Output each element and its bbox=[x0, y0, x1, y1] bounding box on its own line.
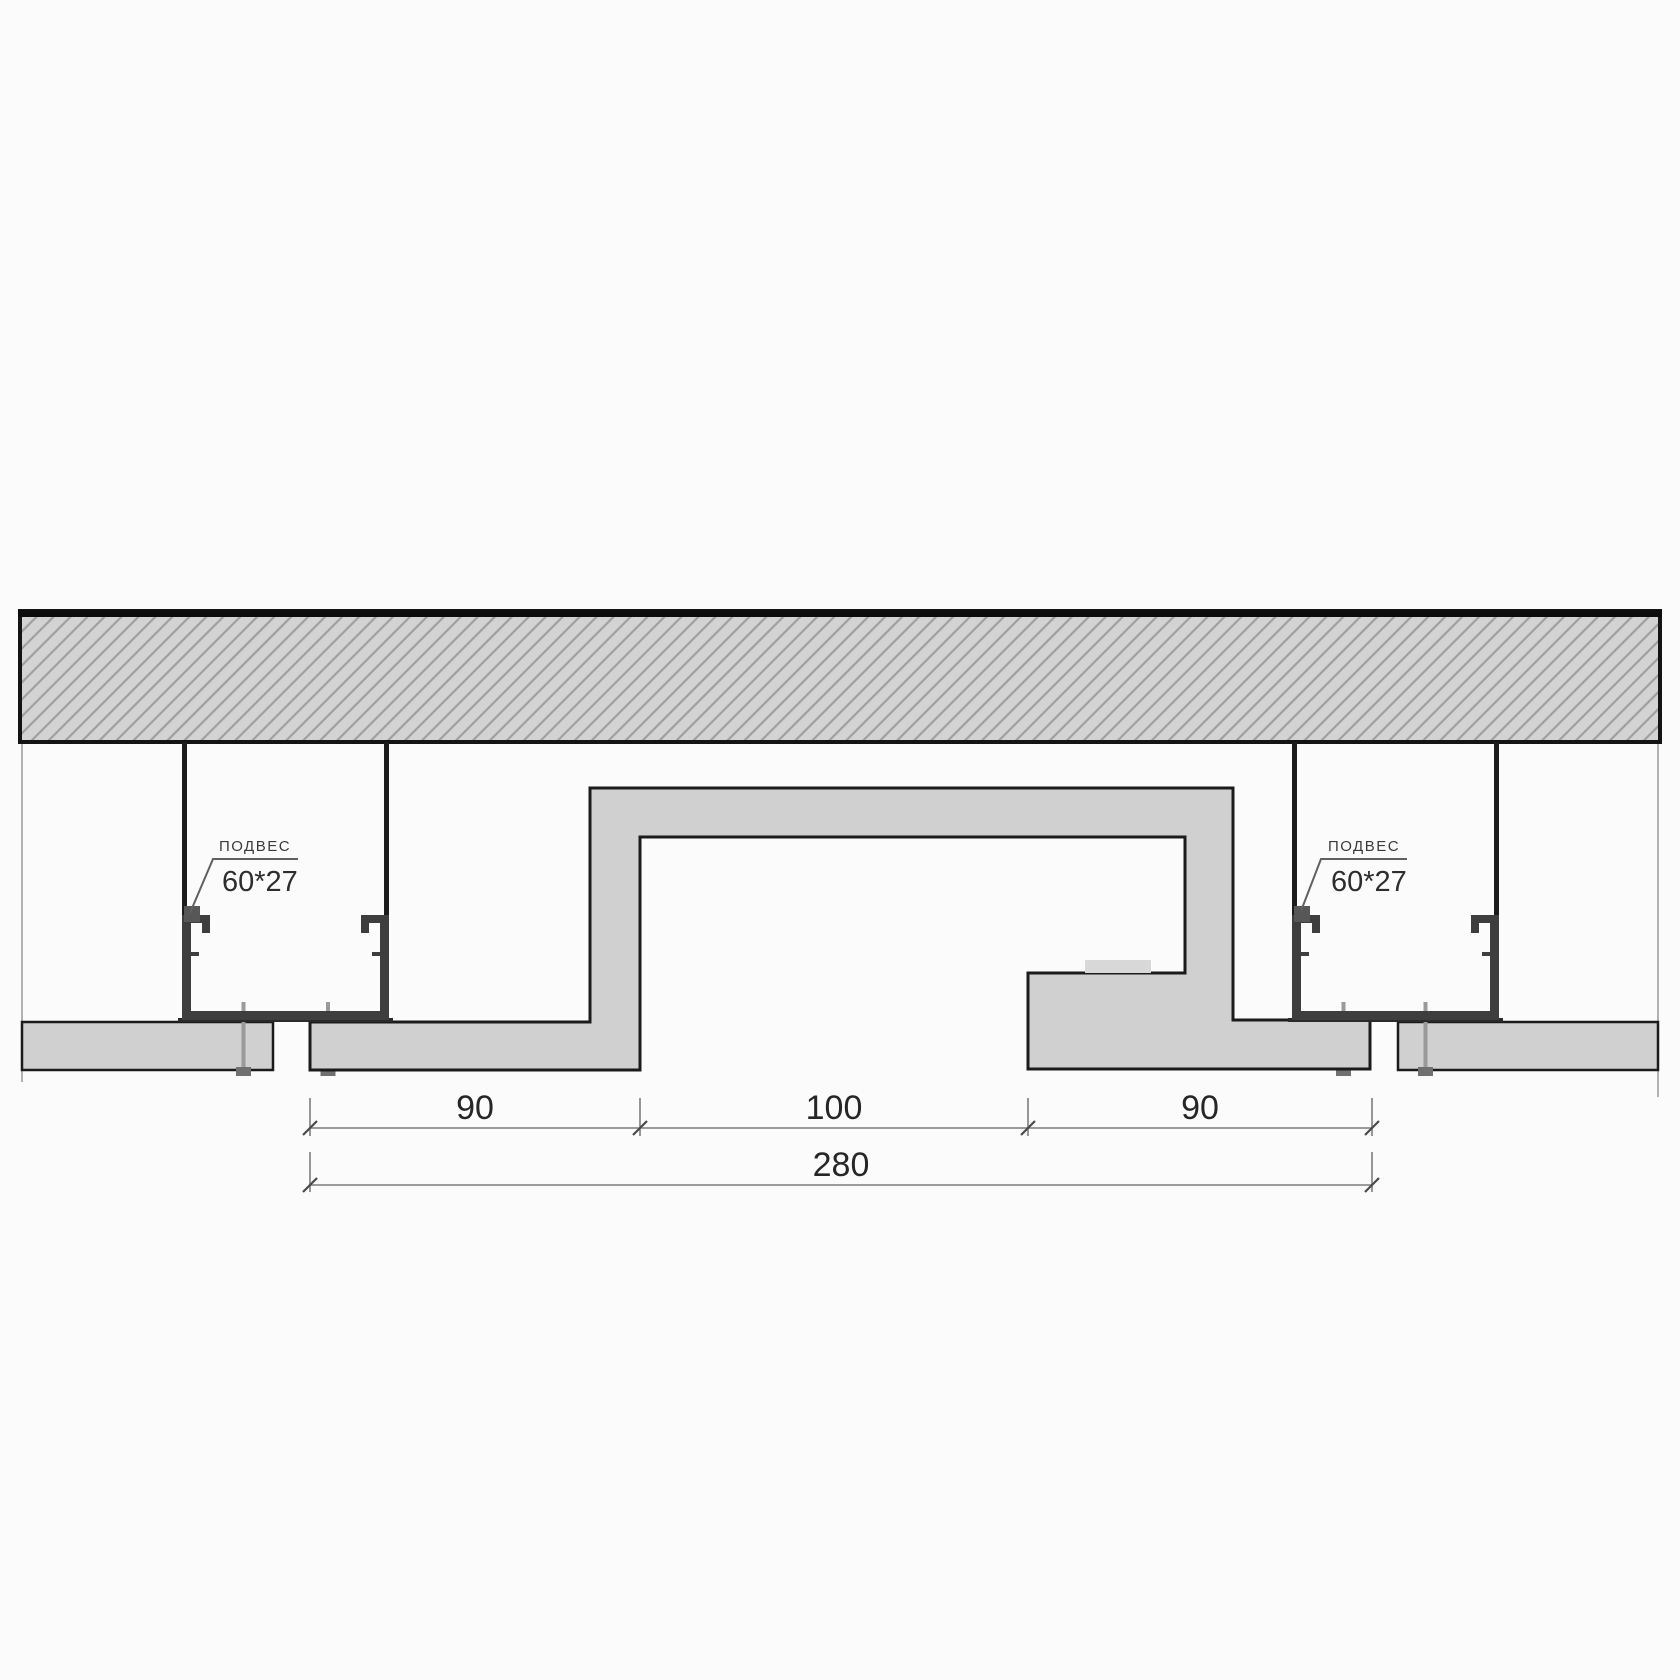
concrete-slab bbox=[18, 611, 1662, 742]
profile-rib bbox=[1301, 952, 1309, 956]
ceiling-board-right bbox=[1398, 1022, 1658, 1070]
drawing-canvas: ПОДВЕС 60*27 ПОДВЕС 60*27 90 100 90 280 bbox=[0, 0, 1680, 1680]
profile-size-label: 60*27 bbox=[1331, 866, 1407, 898]
profile-lip bbox=[1471, 923, 1479, 933]
screw-head-icon bbox=[1418, 1067, 1433, 1076]
dim-value-left: 90 bbox=[456, 1089, 494, 1127]
dim-value-right: 90 bbox=[1181, 1089, 1219, 1127]
hanger-label: ПОДВЕС bbox=[219, 838, 291, 855]
profile-rib bbox=[1482, 952, 1490, 956]
dim-value-middle: 100 bbox=[806, 1089, 863, 1127]
hanger-label: ПОДВЕС bbox=[1328, 838, 1400, 855]
profile-wall bbox=[380, 915, 389, 1020]
slab-hatching bbox=[20, 611, 1660, 742]
ceiling-section-drawing: ПОДВЕС 60*27 ПОДВЕС 60*27 90 100 90 280 bbox=[0, 0, 1680, 1680]
ceiling-board-left bbox=[22, 1022, 273, 1070]
profile-lip bbox=[202, 923, 210, 933]
profile-wall bbox=[1292, 915, 1301, 1020]
led-strip bbox=[1085, 960, 1151, 973]
profile-bottom bbox=[1292, 1011, 1499, 1020]
profile-bottom bbox=[182, 1011, 389, 1020]
profile-lip bbox=[1312, 923, 1320, 933]
profile-rib bbox=[372, 952, 380, 956]
profile-rib bbox=[191, 952, 199, 956]
profile-wall bbox=[182, 915, 191, 1020]
profile-size-label: 60*27 bbox=[222, 866, 298, 898]
profile-wall bbox=[1490, 915, 1499, 1020]
profile-lip bbox=[361, 923, 369, 933]
screw-head-icon bbox=[236, 1067, 251, 1076]
profile-lip bbox=[361, 915, 389, 923]
profile-lip bbox=[1471, 915, 1499, 923]
dim-value-total: 280 bbox=[813, 1146, 870, 1184]
